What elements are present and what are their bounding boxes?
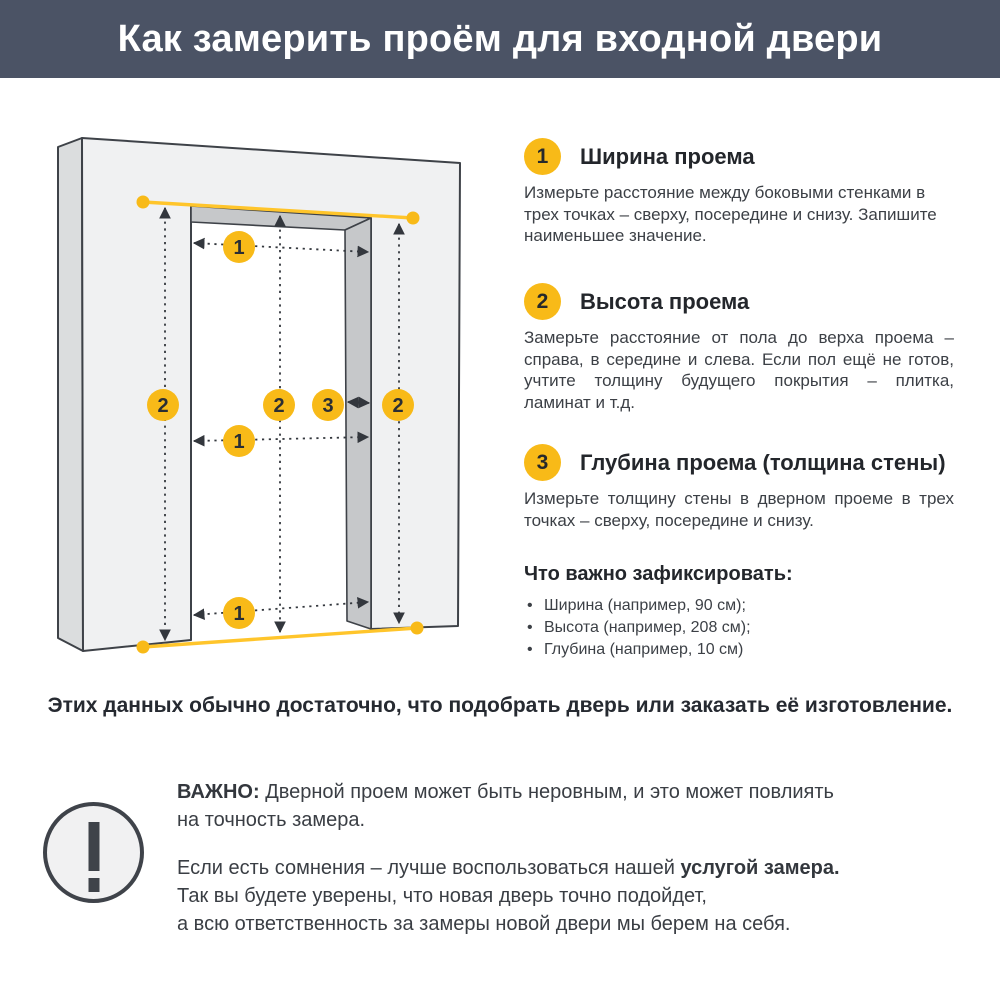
bullet-icon: • (527, 595, 535, 617)
section-width-title: Ширина проема (580, 144, 755, 170)
svg-text:2: 2 (392, 395, 403, 417)
width-line-middle (194, 437, 368, 441)
bullet-icon: • (527, 617, 535, 639)
section-width: 1 Ширина проема Измерьте расстояние межд… (524, 138, 954, 247)
section-depth-header: 3 Глубина проема (толщина стены) (524, 444, 954, 481)
section-width-text: Измерьте расстояние между боковыми стенк… (524, 182, 954, 247)
list-item: • Глубина (например, 10 см) (524, 639, 954, 661)
svg-text:2: 2 (157, 395, 168, 417)
summary-note: Этих данных обычно достаточно, что подоб… (0, 694, 1000, 718)
svg-text:1: 1 (233, 431, 244, 453)
step-number-badge: 3 (524, 444, 561, 481)
svg-text:1: 1 (233, 237, 244, 259)
wall-side-face (58, 138, 83, 651)
exclamation-dot (88, 878, 99, 892)
tape-dot-bottom-left (137, 641, 150, 654)
list-item: • Высота (например, 208 см); (524, 617, 954, 639)
checklist-title: Что важно зафиксировать: (524, 563, 954, 586)
width-line-top (194, 243, 368, 252)
section-depth-title: Глубина проема (толщина стены) (580, 450, 946, 476)
infographic-root: Как замерить проём для входной двери (0, 0, 1000, 1000)
checklist: Что важно зафиксировать: • Ширина (напри… (524, 563, 954, 661)
page-title: Как замерить проём для входной двери (118, 18, 883, 61)
section-height-text: Замерьте расстояние от пола до верха про… (524, 327, 954, 413)
svg-text:1: 1 (233, 603, 244, 625)
important-label: ВАЖНО: (177, 781, 260, 803)
measure-service-highlight: услугой замера. (680, 857, 839, 879)
important-paragraph-2: Если есть сомнения – лучше воспользовать… (177, 854, 967, 938)
width-line-bottom (194, 602, 368, 615)
header-bar: Как замерить проём для входной двери (0, 0, 1000, 78)
checklist-item-depth: Глубина (например, 10 см) (544, 639, 743, 661)
checklist-item-width: Ширина (например, 90 см); (544, 595, 746, 617)
section-height: 2 Высота проема Замерьте расстояние от п… (524, 283, 954, 413)
svg-text:3: 3 (322, 395, 333, 417)
section-depth: 3 Глубина проема (толщина стены) Измерьт… (524, 444, 954, 531)
list-item: • Ширина (например, 90 см); (524, 595, 954, 617)
exclamation-icon (43, 802, 144, 903)
section-width-header: 1 Ширина проема (524, 138, 954, 175)
section-height-title: Высота проема (580, 289, 749, 315)
bullet-icon: • (527, 639, 535, 661)
step-number-badge: 2 (524, 283, 561, 320)
svg-text:2: 2 (273, 395, 284, 417)
tape-dot-top-left (137, 196, 150, 209)
important-paragraph-1: ВАЖНО: Дверной проем может быть неровным… (177, 778, 967, 834)
tape-dot-bottom-right (411, 622, 424, 635)
tape-dot-top-right (407, 212, 420, 225)
section-height-header: 2 Высота проема (524, 283, 954, 320)
checklist-item-height: Высота (например, 208 см); (544, 617, 751, 639)
door-opening-diagram: 1 1 1 2 2 2 3 (30, 120, 500, 680)
opening-jamb-face (345, 218, 371, 629)
step-number-badge: 1 (524, 138, 561, 175)
exclamation-bar (88, 822, 99, 871)
section-depth-text: Измерьте толщину стены в дверном проеме … (524, 488, 954, 531)
